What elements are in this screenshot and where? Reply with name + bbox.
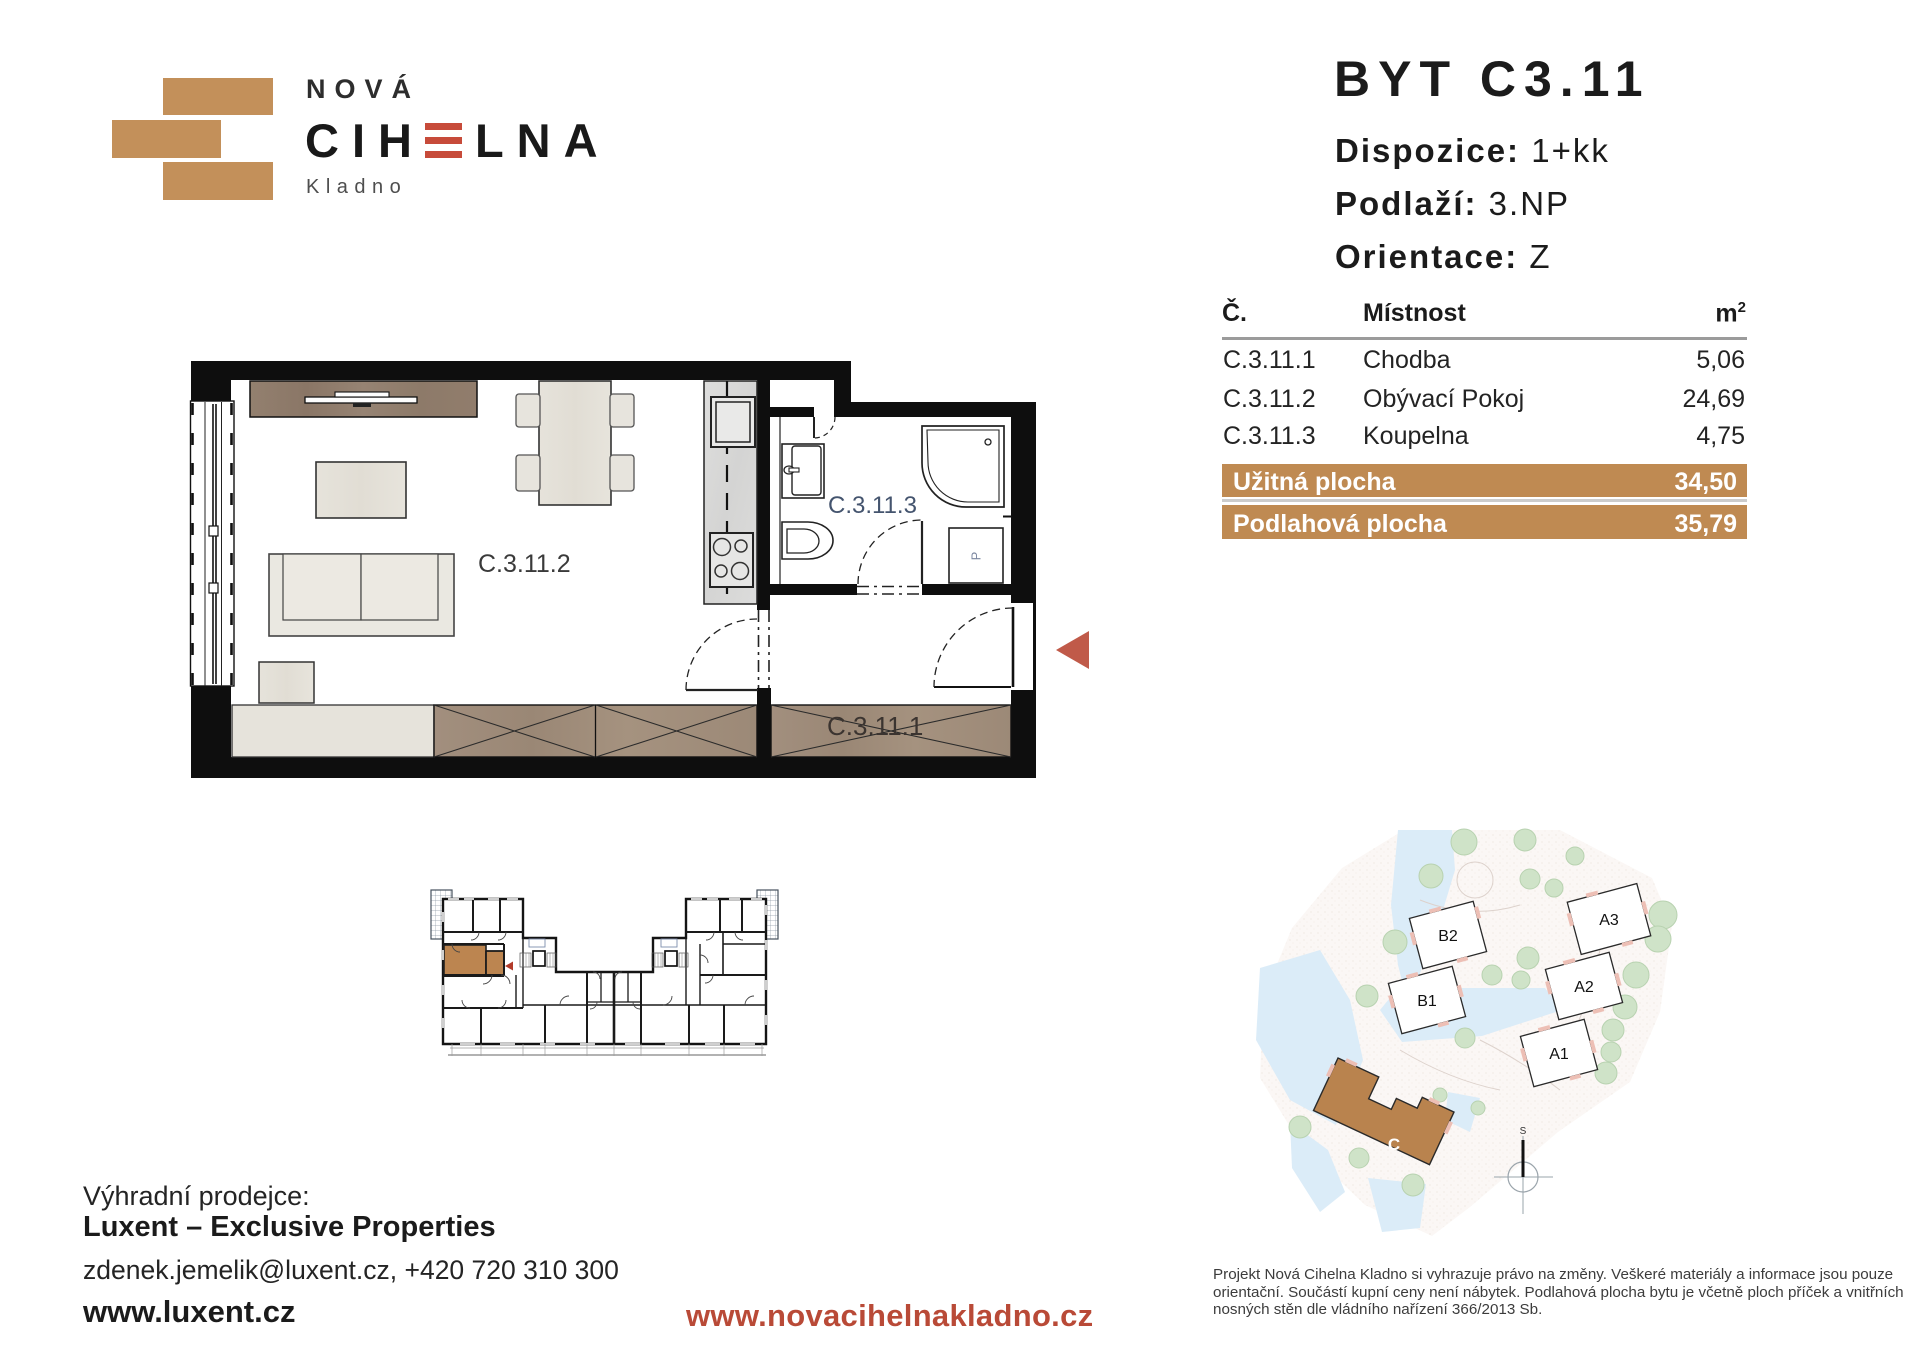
svg-text:B2: B2 [1438, 928, 1458, 945]
svg-text:C.3.11.3: C.3.11.3 [828, 492, 917, 519]
svg-text:P: P [969, 552, 984, 561]
svg-text:A2: A2 [1574, 979, 1594, 996]
svg-text:C: C [1388, 1135, 1400, 1154]
svg-text:B1: B1 [1417, 993, 1437, 1010]
svg-text:A3: A3 [1599, 912, 1619, 929]
svg-text:S: S [1520, 1126, 1527, 1137]
svg-text:C.3.11.1: C.3.11.1 [827, 711, 923, 741]
svg-text:C.3.11.2: C.3.11.2 [478, 550, 571, 578]
svg-text:A1: A1 [1549, 1046, 1569, 1063]
